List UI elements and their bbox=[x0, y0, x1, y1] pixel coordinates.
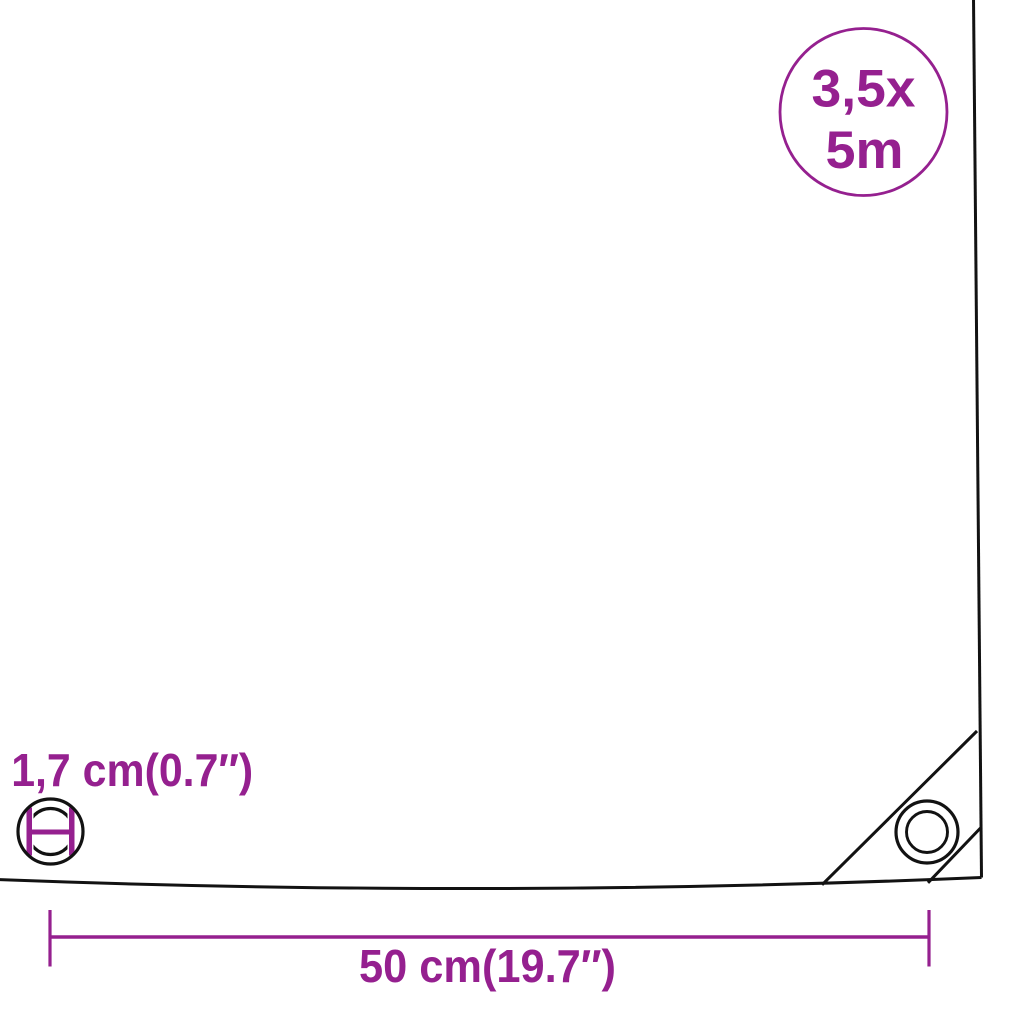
svg-text:50 cm(19.7″): 50 cm(19.7″) bbox=[359, 940, 616, 992]
svg-text:5m: 5m bbox=[826, 121, 904, 180]
svg-text:3,5x: 3,5x bbox=[812, 60, 917, 119]
svg-text:1,7 cm(0.7″): 1,7 cm(0.7″) bbox=[11, 744, 253, 796]
